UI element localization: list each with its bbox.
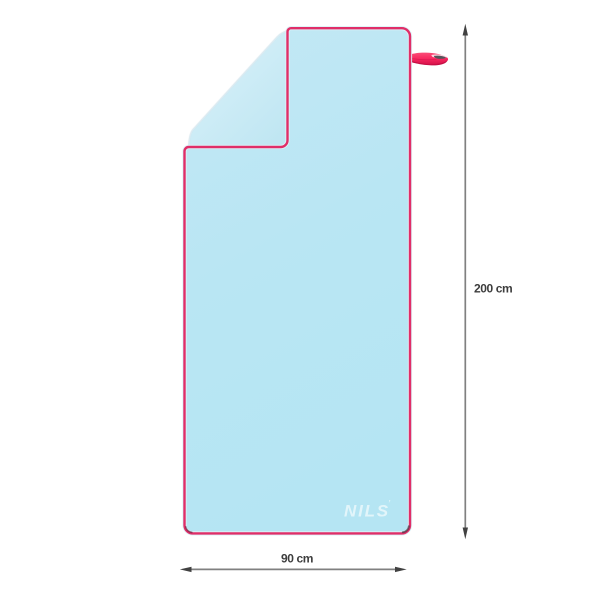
svg-text:NILS: NILS <box>344 502 390 521</box>
svg-text:200 cm: 200 cm <box>474 282 512 296</box>
svg-text:90 cm: 90 cm <box>281 552 313 566</box>
